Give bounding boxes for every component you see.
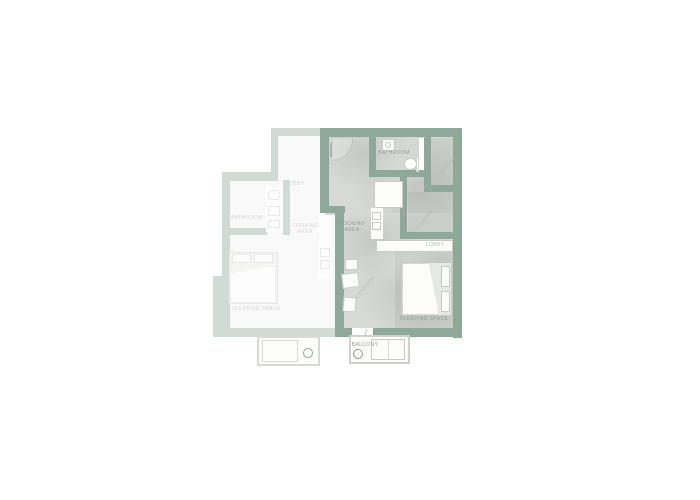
left-wall-corridor-left xyxy=(271,128,278,178)
wall-top xyxy=(320,128,462,137)
left-chair-icon xyxy=(303,348,313,358)
kitchen-sink-icon xyxy=(372,212,381,220)
bathroom-label: BATHROOM xyxy=(378,151,410,157)
stove-icon xyxy=(372,222,381,230)
wall-wardrobe-bottom xyxy=(424,185,453,192)
chair xyxy=(342,296,356,312)
balcony-label: BALCONY xyxy=(350,343,380,349)
pillow xyxy=(441,266,450,287)
wall-wardrobe-left xyxy=(424,137,431,192)
left-lobby-label: LOBBY xyxy=(283,182,307,188)
door-dimension-mark xyxy=(330,143,332,157)
table xyxy=(341,272,360,289)
left-wall-corridor-top xyxy=(272,128,320,136)
left-balcony-divider xyxy=(279,340,280,362)
chair xyxy=(345,259,358,270)
left-balcony-bench xyxy=(262,340,298,362)
left-kitchen-sink-icon xyxy=(320,248,330,257)
left-toilet-icon xyxy=(268,190,280,200)
left-wall-bath-right xyxy=(283,180,290,235)
left-washer-icon xyxy=(268,220,280,228)
lobby-label: LOBBY xyxy=(421,243,449,249)
left-wall-bath-bottom xyxy=(229,228,267,235)
chair-icon xyxy=(353,349,363,359)
left-pillow xyxy=(254,254,273,263)
left-wall-top xyxy=(222,172,278,181)
left-pillow xyxy=(232,254,251,263)
sink-basin-icon xyxy=(385,142,391,148)
kitchen-island xyxy=(374,181,403,208)
floor-plan: LOBBY BATHROOM COOKING AREA SLEEPING SPA… xyxy=(0,0,700,500)
left-sleeping-label: SLEEPING SPACE xyxy=(232,307,278,313)
cooking-area-label: COOKING AREA xyxy=(338,222,366,234)
left-kitchen-counter xyxy=(318,215,332,279)
balcony-bench-divider xyxy=(388,339,389,360)
pillow xyxy=(441,291,450,312)
wall-left-upper xyxy=(320,128,329,213)
left-sink-icon xyxy=(268,206,280,216)
sleeping-space-label: SLEEPING SPACE xyxy=(398,317,450,323)
wall-storage-bottom xyxy=(400,232,453,239)
left-wall-left xyxy=(222,172,230,329)
left-stove-icon xyxy=(320,260,330,269)
bathroom-door xyxy=(419,138,424,170)
left-cooking-label: COOKING AREA xyxy=(292,224,318,236)
left-bathroom-label: BATHROOM xyxy=(231,216,263,222)
